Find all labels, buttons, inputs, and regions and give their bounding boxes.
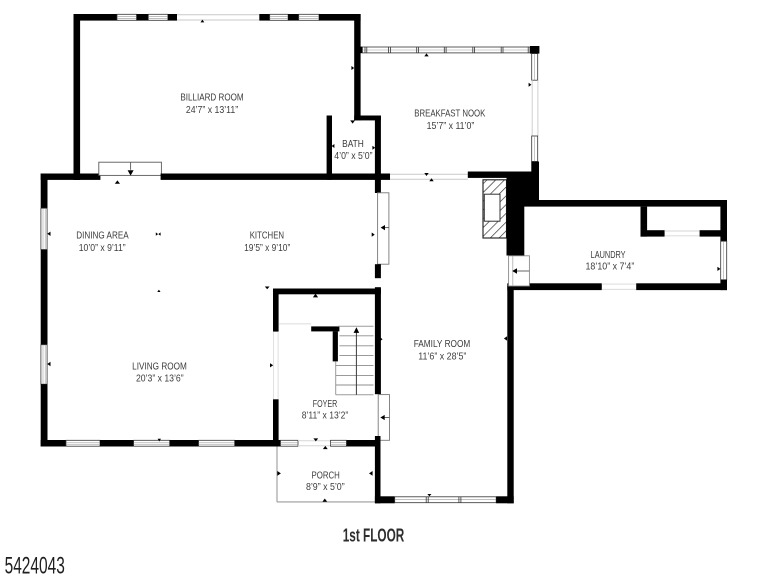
svg-text:15’7” x 11’0”: 15’7” x 11’0”	[427, 121, 475, 132]
svg-text:FOYER: FOYER	[313, 399, 338, 410]
svg-text:PORCH: PORCH	[312, 470, 340, 481]
svg-text:FAMILY ROOM: FAMILY ROOM	[414, 339, 471, 350]
svg-text:20’3” x 13’6”: 20’3” x 13’6”	[136, 374, 184, 385]
svg-text:BATH: BATH	[342, 139, 364, 150]
svg-text:1st FLOOR: 1st FLOOR	[343, 525, 405, 545]
svg-text:BILLIARD ROOM: BILLIARD ROOM	[180, 92, 243, 103]
svg-text:5424043: 5424043	[5, 553, 65, 576]
svg-text:10’0” x 9’11”: 10’0” x 9’11”	[79, 243, 126, 254]
svg-text:8’9” x 5’0”: 8’9” x 5’0”	[306, 482, 345, 493]
svg-text:11’6” x 28’5”: 11’6” x 28’5”	[418, 351, 467, 362]
svg-text:KITCHEN: KITCHEN	[250, 230, 284, 241]
svg-text:4’0” x 5’0”: 4’0” x 5’0”	[334, 151, 373, 162]
svg-text:8’11” x 13’2”: 8’11” x 13’2”	[302, 411, 349, 422]
svg-text:DINING AREA: DINING AREA	[76, 230, 129, 241]
svg-text:LIVING ROOM: LIVING ROOM	[132, 361, 187, 372]
svg-text:BREAKFAST NOOK: BREAKFAST NOOK	[414, 108, 485, 119]
svg-text:18’10” x 7’4”: 18’10” x 7’4”	[586, 262, 635, 273]
svg-text:LAUNDRY: LAUNDRY	[591, 250, 626, 261]
svg-text:19’5” x 9’10”: 19’5” x 9’10”	[244, 243, 291, 254]
svg-text:24’7” x 13’11”: 24’7” x 13’11”	[186, 105, 239, 116]
